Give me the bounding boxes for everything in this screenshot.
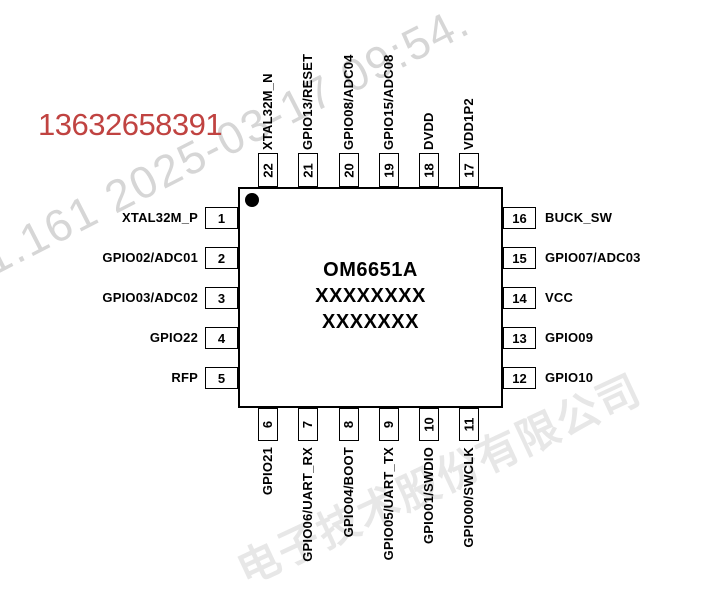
pin-14-label: VCC — [545, 289, 573, 307]
pin-4-label: GPIO22 — [20, 329, 198, 347]
pin-17-number: 17 — [463, 163, 476, 177]
pin-11-number: 11 — [463, 418, 476, 432]
pin-7-label: GPIO06/UART_RX — [301, 447, 315, 562]
pin-15-number: 15 — [512, 252, 526, 265]
pin-19-box: 19 — [379, 153, 399, 187]
pin-17-label: VDD1P2 — [462, 98, 476, 150]
pin-20-number: 20 — [343, 163, 356, 177]
pin-8-label: GPIO04/BOOT — [342, 447, 356, 537]
pin-1-number: 1 — [218, 212, 225, 225]
pin-9-label: GPIO05/UART_TX — [382, 447, 396, 560]
pin-11-label: GPIO00/SWCLK — [462, 447, 476, 548]
pin-13-number: 13 — [512, 332, 526, 345]
pin-19-number: 19 — [383, 163, 396, 177]
pin-7-number: 7 — [301, 421, 314, 428]
pin-3-number: 3 — [218, 292, 225, 305]
pin-3-label: GPIO03/ADC02 — [20, 289, 198, 307]
pin-2-label: GPIO02/ADC01 — [20, 249, 198, 267]
pin-21-label: GPIO13/RESET — [301, 54, 315, 150]
pin-1-box: 1 — [205, 207, 238, 229]
pin-5-number: 5 — [218, 372, 225, 385]
pin-15-box: 15 — [503, 247, 536, 269]
pin-18-number: 18 — [423, 163, 436, 177]
pin-14-number: 14 — [512, 292, 526, 305]
pin-17-box: 17 — [459, 153, 479, 187]
pin-12-box: 12 — [503, 367, 536, 389]
pin-13-box: 13 — [503, 327, 536, 349]
pin-13-label: GPIO09 — [545, 329, 593, 347]
pin-19-label: GPIO15/ADC08 — [382, 54, 396, 150]
pin-6-box: 6 — [258, 408, 278, 441]
pinout-diagram-page: 1.161 2025-03-17 09:54. 电子技术股份有限公司 13632… — [0, 0, 727, 585]
pin-1-label: XTAL32M_P — [20, 209, 198, 227]
pin-22-number: 22 — [262, 163, 275, 177]
pin-3-box: 3 — [205, 287, 238, 309]
pin-22-label: XTAL32M_N — [261, 73, 275, 150]
pin-12-number: 12 — [512, 372, 526, 385]
pin-16-label: BUCK_SW — [545, 209, 612, 227]
pin-5-label: RFP — [20, 369, 198, 387]
pin-16-number: 16 — [512, 212, 526, 225]
pin-21-number: 21 — [302, 163, 315, 177]
pin-10-number: 10 — [423, 417, 436, 431]
pin-2-number: 2 — [218, 252, 225, 265]
pin-2-box: 2 — [205, 247, 238, 269]
pin-9-box: 9 — [379, 408, 399, 441]
pin-6-number: 6 — [261, 421, 274, 428]
chip-part-number: OM6651A — [238, 257, 503, 283]
phone-number-overlay: 13632658391 — [38, 106, 222, 144]
pin-8-number: 8 — [342, 421, 355, 428]
pin-15-label: GPIO07/ADC03 — [545, 249, 641, 267]
pin-16-box: 16 — [503, 207, 536, 229]
pin-18-box: 18 — [419, 153, 439, 187]
pin-20-label: GPIO08/ADC04 — [342, 54, 356, 150]
pin-18-label: DVDD — [422, 112, 436, 150]
pin-10-box: 10 — [419, 408, 439, 441]
pin-22-box: 22 — [258, 153, 278, 187]
pin-4-number: 4 — [218, 332, 225, 345]
pin-12-label: GPIO10 — [545, 369, 593, 387]
chip-pinout-diagram: OM6651A XXXXXXXX XXXXXXX 1 XTAL32M_P 2 G… — [0, 0, 727, 585]
chip-marking-line2: XXXXXXXX — [238, 283, 503, 309]
pin-8-box: 8 — [339, 408, 359, 441]
pin-21-box: 21 — [298, 153, 318, 187]
pin-5-box: 5 — [205, 367, 238, 389]
pin-10-label: GPIO01/SWDIO — [422, 447, 436, 544]
chip-marking-line3: XXXXXXX — [238, 309, 503, 335]
pin-7-box: 7 — [298, 408, 318, 441]
pin-9-number: 9 — [382, 421, 395, 428]
pin1-indicator-dot — [245, 193, 259, 207]
pin-4-box: 4 — [205, 327, 238, 349]
pin-14-box: 14 — [503, 287, 536, 309]
pin-20-box: 20 — [339, 153, 359, 187]
chip-marking: OM6651A XXXXXXXX XXXXXXX — [238, 257, 503, 335]
pin-6-label: GPIO21 — [261, 447, 275, 495]
pin-11-box: 11 — [459, 408, 479, 441]
